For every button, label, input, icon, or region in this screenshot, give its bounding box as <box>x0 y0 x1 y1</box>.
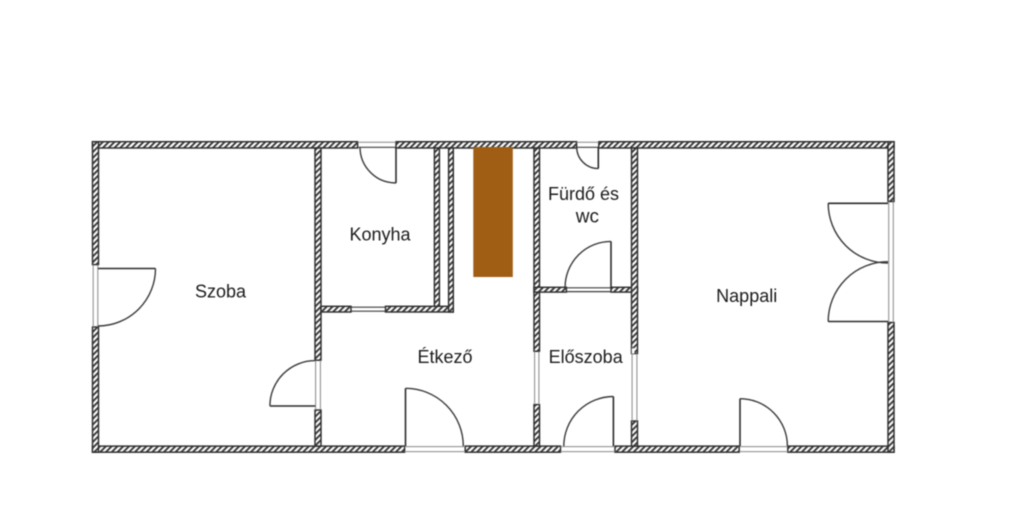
svg-text:Étkező: Étkező <box>417 347 472 367</box>
svg-text:Fürdő és: Fürdő és <box>548 184 619 204</box>
svg-text:wc: wc <box>575 207 599 228</box>
svg-text:Konyha: Konyha <box>349 225 411 245</box>
svg-text:Nappali: Nappali <box>716 286 777 306</box>
svg-text:Előszoba: Előszoba <box>549 347 624 367</box>
svg-text:Szoba: Szoba <box>195 282 247 302</box>
